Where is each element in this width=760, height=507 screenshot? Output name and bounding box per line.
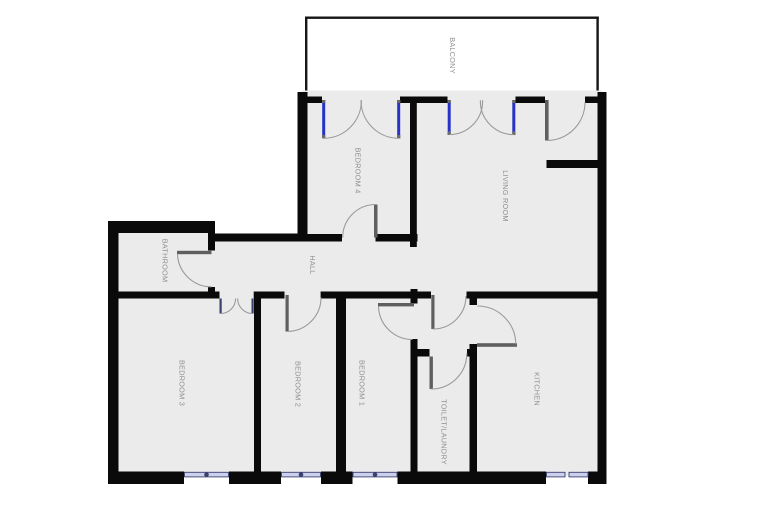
svg-text:TOILET/LAUNDRY: TOILET/LAUNDRY xyxy=(440,399,449,465)
svg-text:BATHROOM: BATHROOM xyxy=(161,239,170,283)
svg-text:BEDROOM 2: BEDROOM 2 xyxy=(294,361,303,407)
svg-text:BEDROOM 4: BEDROOM 4 xyxy=(354,147,363,193)
svg-text:KITCHEN: KITCHEN xyxy=(533,372,542,406)
svg-text:BALCONY: BALCONY xyxy=(448,37,457,74)
svg-text:BEDROOM 1: BEDROOM 1 xyxy=(358,360,367,406)
svg-text:HALL: HALL xyxy=(308,255,317,274)
svg-text:BEDROOM 3: BEDROOM 3 xyxy=(178,360,187,406)
svg-text:LIVING ROOM: LIVING ROOM xyxy=(501,170,510,221)
